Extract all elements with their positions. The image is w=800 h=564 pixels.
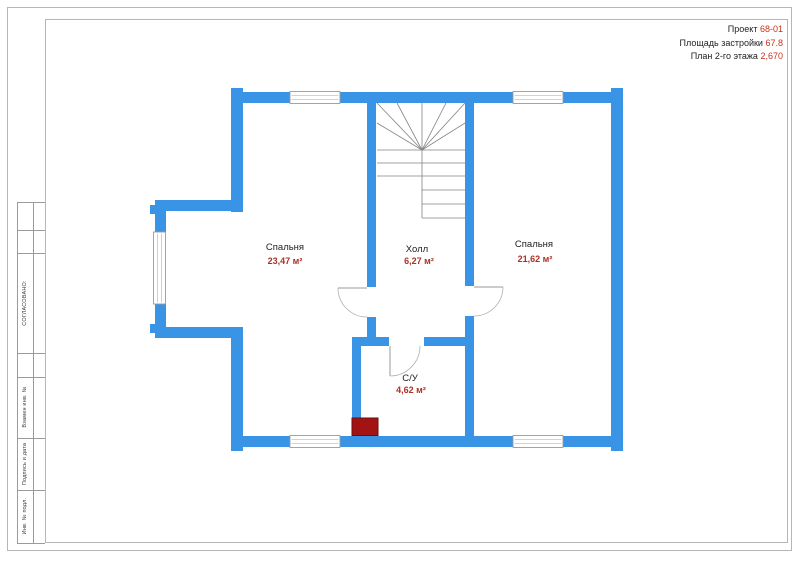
room-labels: Спальня 23,47 м² Холл 6,27 м² Спальня 21… [266, 239, 553, 395]
staircase [377, 103, 465, 218]
room-area-bedroom-right: 21,62 м² [518, 254, 553, 264]
door-bedroom-left [338, 288, 367, 317]
door-bathroom [390, 346, 420, 376]
door-bedroom-right [474, 287, 503, 316]
window-top-left [290, 92, 340, 104]
room-name-bedroom-left: Спальня [266, 242, 304, 253]
window-bay-left [154, 232, 166, 304]
room-name-bedroom-right: Спальня [515, 239, 553, 250]
room-area-bathroom: 4,62 м² [396, 385, 426, 395]
room-area-bedroom-left: 23,47 м² [268, 256, 303, 266]
room-area-hall: 6,27 м² [404, 256, 434, 266]
window-bottom-left [290, 436, 340, 448]
exterior-walls [150, 88, 623, 451]
flue-block [352, 418, 378, 436]
floor-plan: Спальня 23,47 м² Холл 6,27 м² Спальня 21… [0, 0, 800, 564]
window-top-right [513, 92, 563, 104]
window-bottom-right [513, 436, 563, 448]
drawing-sheet: СОГЛАСОВАНО: Взамен инв. № Подпись и дат… [0, 0, 800, 564]
room-name-hall: Холл [406, 244, 428, 255]
room-name-bathroom: С/У [402, 373, 419, 384]
